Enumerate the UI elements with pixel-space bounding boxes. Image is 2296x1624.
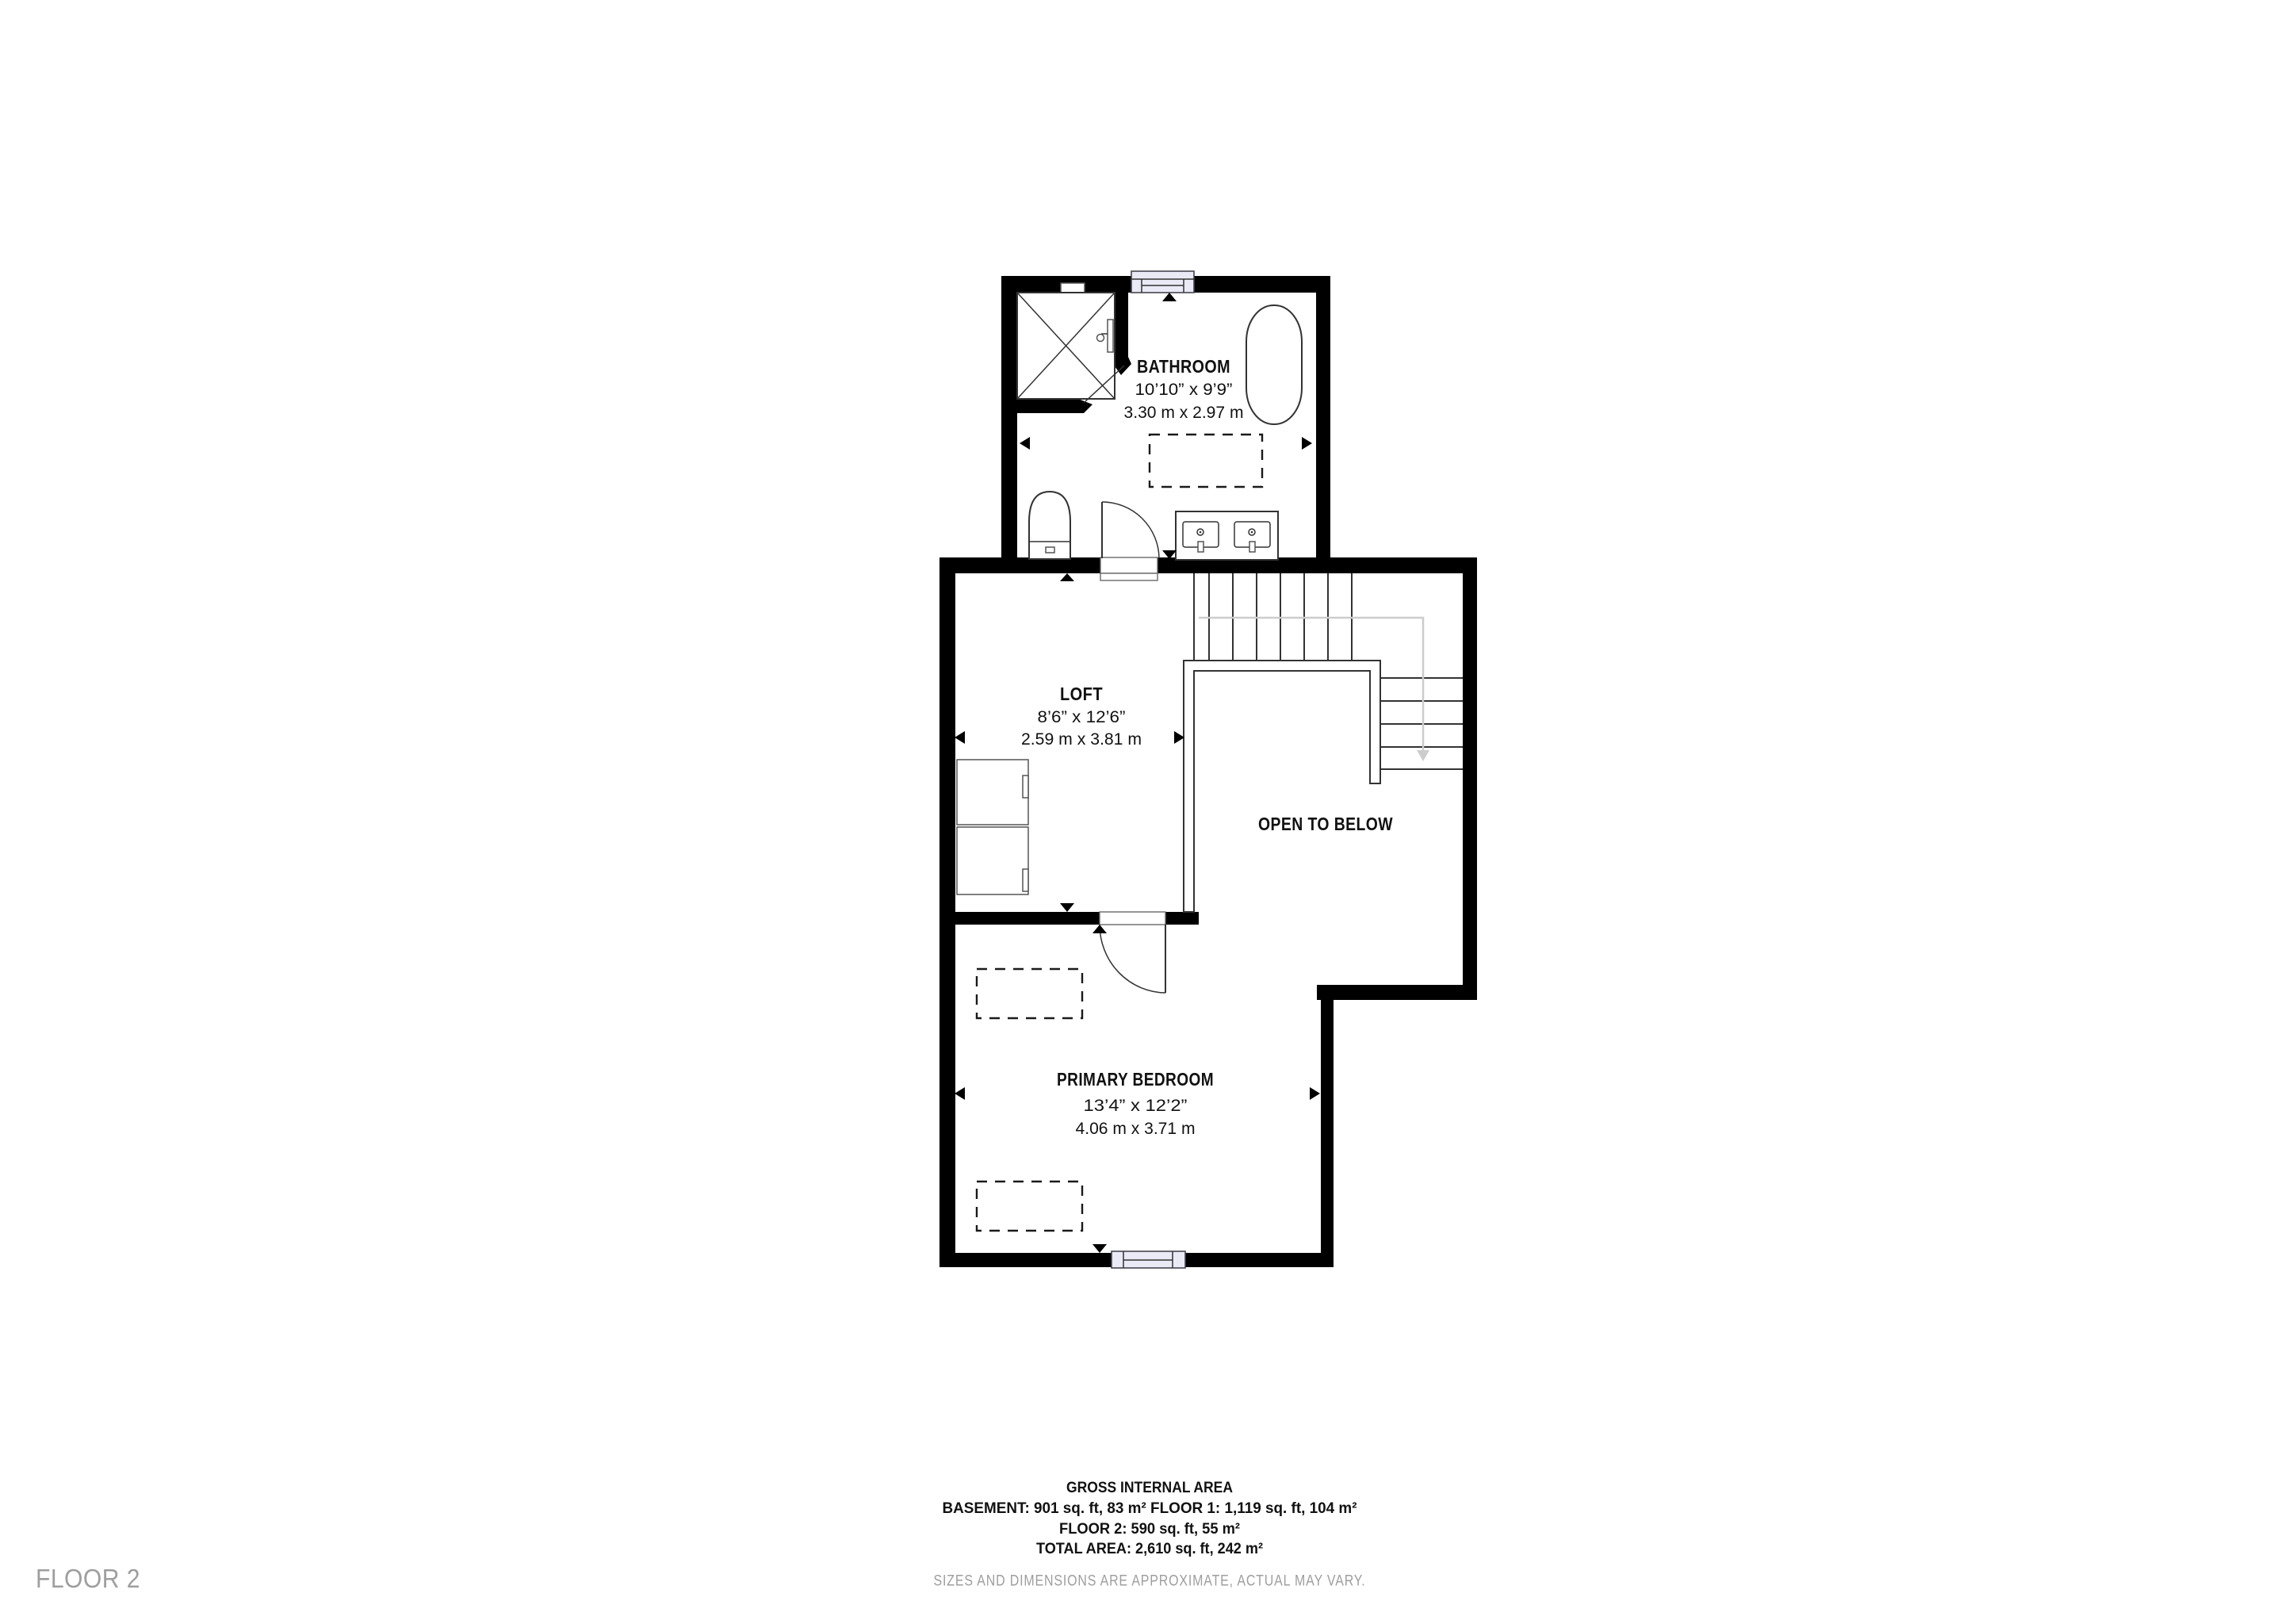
bathroom-door-swing-arc <box>1102 502 1159 558</box>
loft-imperial-dim: 8’6” x 12’6” <box>1038 707 1126 726</box>
bedroom-door-swing-arc <box>1100 925 1165 993</box>
bathroom-arrow-up-icon <box>1162 293 1177 301</box>
bedroom-arrow-up-icon <box>1093 925 1107 933</box>
loft-bedroom-divider-wall-left <box>939 912 1100 925</box>
bedroom-features <box>977 969 1082 1231</box>
vanity-counter <box>1176 511 1278 560</box>
loft-cabinet-top <box>957 760 1028 825</box>
bathroom-top-wall-right <box>1194 276 1330 293</box>
bathroom-door-threshold <box>1100 557 1158 573</box>
faucet-right-dot <box>1251 531 1253 534</box>
bathroom-fixtures <box>1017 293 1302 560</box>
stair-railing <box>1184 661 1380 912</box>
disclaimer-text: SIZES AND DIMENSIONS ARE APPROXIMATE, AC… <box>934 1573 1366 1590</box>
void-bottom-wall <box>1317 985 1477 1000</box>
bathroom-skylight-dashed <box>1150 435 1262 487</box>
loft-bedroom-divider-wall-right <box>1165 912 1199 925</box>
bathroom-imperial-dim: 10’10” x 9’9” <box>1135 380 1233 399</box>
loft-metric-dim: 2.59 m x 3.81 m <box>1021 730 1142 749</box>
bedroom-imperial-dim: 13’4” x 12’2” <box>1084 1096 1188 1115</box>
loft-furniture <box>957 760 1028 894</box>
staircase <box>1184 573 1463 912</box>
loft-arrow-up-icon <box>1060 573 1074 581</box>
loft-cabinet-bottom <box>957 827 1028 894</box>
bathroom-left-wall <box>1001 293 1017 557</box>
shower-partition-wall-bottom <box>1017 399 1078 413</box>
bathroom-window <box>1131 271 1194 293</box>
bathtub <box>1246 305 1302 424</box>
bathroom-arrow-right-icon <box>1302 437 1312 450</box>
bathroom-door-sill <box>1100 573 1158 580</box>
bedroom-bottom-wall-left <box>939 1253 1112 1267</box>
primary-bedroom-label: PRIMARY BEDROOM <box>1057 1069 1214 1090</box>
bathroom-metric-dim: 3.30 m x 2.97 m <box>1124 403 1244 422</box>
floor-plan-page: BATHROOM 10’10” x 9’9” 3.30 m x 2.97 m L… <box>0 0 2296 1624</box>
bathroom-right-wall <box>1316 293 1330 557</box>
bedroom-bottom-wall-right <box>1185 1253 1334 1267</box>
toilet-flush-button <box>1046 547 1054 553</box>
loft-cabinet-top-handle <box>1023 776 1028 798</box>
loft-arrow-down-icon <box>1060 903 1074 912</box>
vanity-drain-left <box>1198 542 1203 552</box>
loft-arrow-left-icon <box>955 731 965 744</box>
main-right-wall <box>1463 557 1477 1000</box>
gross-internal-area-title: GROSS INTERNAL AREA <box>1066 1479 1233 1496</box>
vanity-drain-right <box>1249 542 1255 552</box>
room-labels: BATHROOM 10’10” x 9’9” 3.30 m x 2.97 m L… <box>1021 356 1393 1138</box>
faucet-left-dot <box>1200 531 1202 534</box>
shower-head-icon <box>1097 335 1104 342</box>
bedroom-arrow-down-icon <box>1093 1244 1107 1253</box>
bedroom-arrow-left-icon <box>955 1087 965 1100</box>
shower-partition-wall-right <box>1115 293 1128 357</box>
loft-label: LOFT <box>1060 684 1103 704</box>
shower-valve-bar <box>1108 320 1113 352</box>
area-basement-floor1: BASEMENT: 901 sq. ft, 83 m² FLOOR 1: 1,1… <box>943 1500 1357 1517</box>
area-total: TOTAL AREA: 2,610 sq. ft, 242 m² <box>1036 1540 1263 1557</box>
bedroom-diagonal-wall <box>1192 914 1330 994</box>
bedroom-skylight-dashed-bottom <box>977 1182 1082 1231</box>
main-top-wall-left <box>939 557 1100 573</box>
bedroom-door-threshold <box>1100 912 1165 925</box>
area-floor2: FLOOR 2: 590 sq. ft, 55 m² <box>1059 1520 1240 1538</box>
bathroom-label: BATHROOM <box>1137 356 1230 377</box>
bedroom-metric-dim: 4.06 m x 3.71 m <box>1076 1119 1196 1138</box>
shower-niche <box>1061 283 1085 293</box>
bedroom-right-wall <box>1321 993 1334 1267</box>
bathroom-arrow-left-icon <box>1020 437 1030 450</box>
floor-plan-canvas: BATHROOM 10’10” x 9’9” 3.30 m x 2.97 m L… <box>0 0 2296 1624</box>
open-to-below-label: OPEN TO BELOW <box>1258 814 1393 834</box>
loft-cabinet-bottom-handle <box>1023 869 1028 891</box>
bedroom-arrow-right-icon <box>1310 1087 1320 1100</box>
bedroom-skylight-dashed-top <box>977 969 1082 1018</box>
footer: GROSS INTERNAL AREA BASEMENT: 901 sq. ft… <box>934 1479 1366 1590</box>
stair-direction-arrow-icon <box>1417 750 1429 761</box>
floor-number-label: FLOOR 2 <box>36 1564 140 1593</box>
